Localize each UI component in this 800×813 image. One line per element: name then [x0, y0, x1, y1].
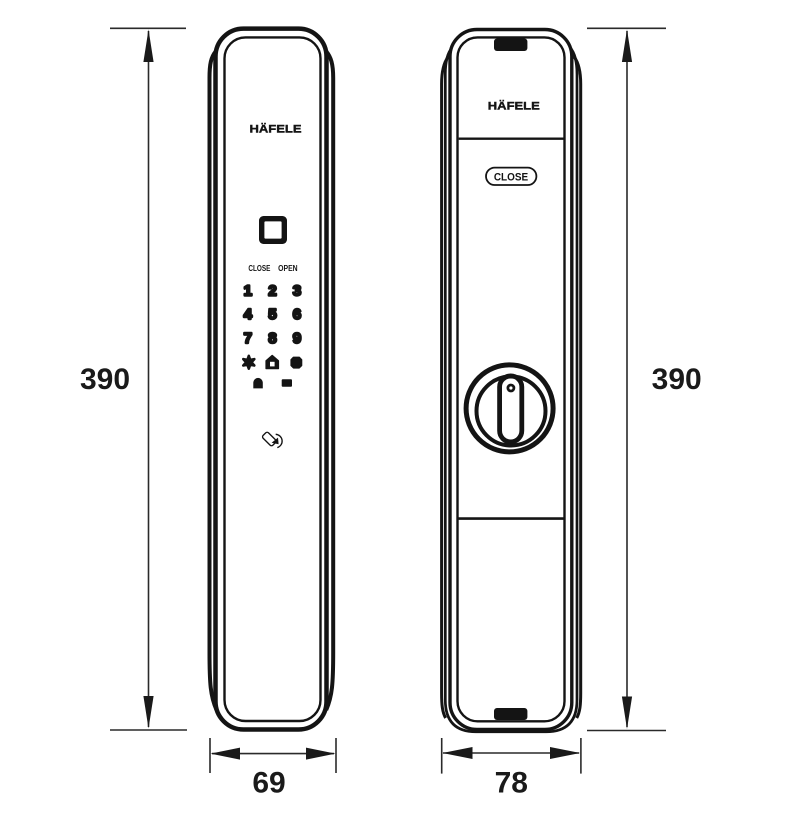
- svg-text:69: 69: [252, 767, 285, 800]
- svg-text:78: 78: [495, 767, 528, 800]
- svg-text:HÄFELE: HÄFELE: [250, 123, 302, 136]
- svg-text:2: 2: [268, 282, 276, 299]
- svg-text:390: 390: [80, 363, 130, 396]
- svg-text:390: 390: [652, 363, 702, 396]
- svg-text:5: 5: [268, 306, 277, 323]
- svg-text:CLOSE: CLOSE: [494, 171, 528, 183]
- svg-text:4: 4: [244, 306, 253, 323]
- svg-text:6: 6: [293, 306, 301, 323]
- svg-text:OPEN: OPEN: [278, 264, 298, 273]
- svg-text:CLOSE: CLOSE: [248, 264, 270, 273]
- svg-text:9: 9: [293, 330, 301, 347]
- svg-text:HÄFELE: HÄFELE: [488, 100, 540, 113]
- svg-text:7: 7: [244, 330, 252, 347]
- svg-text:3: 3: [293, 282, 301, 299]
- svg-text:8: 8: [268, 330, 276, 347]
- svg-text:1: 1: [244, 282, 253, 299]
